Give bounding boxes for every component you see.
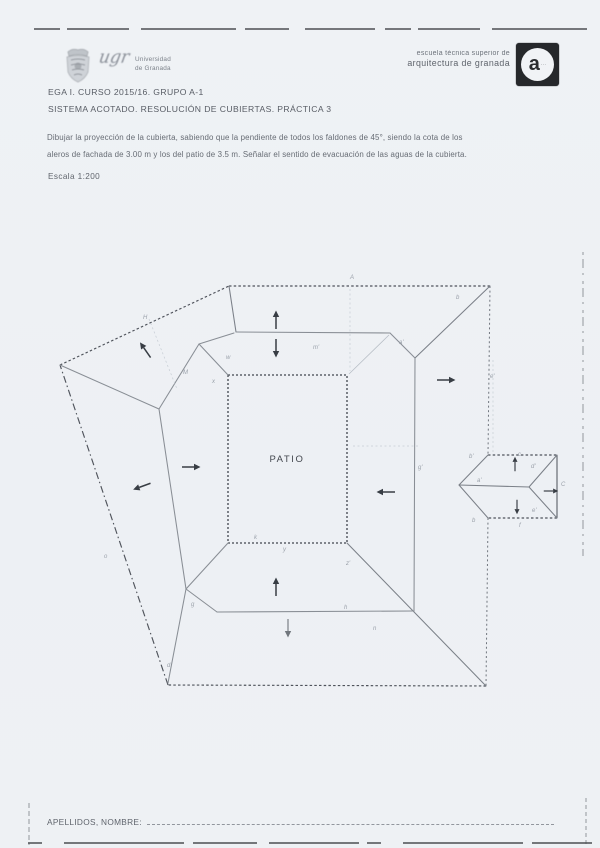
vertex-label: c	[518, 452, 521, 458]
flow-arrow	[377, 489, 396, 495]
flow-arrow	[273, 339, 279, 358]
flow-arrow	[273, 578, 279, 597]
eave-right-edge-upper	[488, 286, 490, 455]
vertex-label: b	[472, 518, 476, 524]
name-field-dotted-line	[147, 817, 554, 825]
eave-right-edge-lower	[486, 518, 488, 686]
hip-patio-bottom-left	[186, 543, 228, 589]
name-field-row: APELLIDOS, NOMBRE:	[47, 817, 554, 827]
valley-topleft-band	[159, 344, 199, 409]
hip-patio-top-right	[349, 335, 389, 374]
valley-bottom-left	[168, 589, 186, 683]
vertex-labels-layer: AHMm'a'be'g'b'cd'Ca'e'fbz'hnkyxwogd	[104, 275, 566, 669]
ridge-right-band	[414, 358, 415, 611]
vertex-label: a'	[399, 340, 404, 346]
vertex-label: A	[349, 275, 354, 281]
annex-hip-top-right	[529, 455, 557, 487]
flow-arrow	[285, 619, 291, 638]
ridge-top-band	[236, 332, 390, 333]
vertex-label: M	[183, 370, 188, 376]
vertex-label: g	[191, 602, 195, 608]
vertex-label: b	[456, 295, 460, 301]
flow-arrow	[273, 311, 279, 330]
scanned-sheet: ugr Universidad de Granada escuela técni…	[0, 0, 600, 848]
hip-left-vertex	[60, 365, 159, 409]
vertex-label: H	[143, 315, 148, 321]
flow-arrow	[437, 377, 456, 383]
vertex-label: k	[254, 535, 258, 541]
hip-patio-top-left	[199, 344, 228, 375]
eave-left-edge	[60, 365, 168, 685]
name-field-label: APELLIDOS, NOMBRE:	[47, 817, 142, 827]
annex-valley-bottom	[459, 485, 488, 518]
vertex-label: d'	[531, 464, 536, 470]
vertex-label: b'	[469, 454, 474, 460]
patio-label: PATIO	[269, 454, 304, 465]
vertex-label: f	[519, 523, 522, 529]
hip-outer-top-left	[229, 286, 236, 332]
ridge-left-band	[159, 409, 186, 589]
water-flow-arrows-layer	[132, 311, 558, 638]
ridge-connector-bottomleft	[186, 589, 217, 612]
eave-top-left-edge	[60, 286, 229, 365]
flow-arrow	[515, 500, 520, 514]
construction-line-b	[149, 319, 177, 389]
hip-outer-top-right	[415, 286, 490, 358]
vertex-label: C	[561, 482, 566, 488]
vertex-label: h	[344, 605, 348, 611]
vertex-label: w	[226, 355, 231, 361]
roof-plan-drawing: PATIO AHMm'a'be'g'b'cd'Ca'e'fbz'hnkyxwog…	[0, 0, 600, 848]
annex-valley-top	[459, 455, 488, 485]
vertex-label: e'	[490, 374, 495, 380]
vertex-label: z'	[345, 561, 351, 567]
flow-arrow	[544, 489, 558, 494]
ridge-bottom-band	[217, 611, 414, 612]
vertex-label: y	[282, 547, 287, 553]
vertex-label: a'	[477, 478, 482, 484]
vertex-label: g'	[418, 465, 423, 471]
vertex-label: m'	[313, 345, 320, 351]
flow-arrow	[137, 341, 153, 360]
vertex-label: x	[211, 379, 216, 385]
flow-arrow	[132, 480, 152, 492]
vertex-label: e'	[532, 508, 537, 514]
flow-arrow	[182, 464, 201, 470]
ridge-connector-topleft	[199, 333, 234, 344]
vertex-label: n	[373, 626, 377, 632]
eave-bottom-edge	[168, 685, 486, 686]
annex-ridge	[459, 485, 529, 487]
hip-patio-bottom-right	[347, 543, 486, 686]
vertex-label: o	[104, 554, 108, 560]
flow-arrow	[513, 457, 518, 471]
